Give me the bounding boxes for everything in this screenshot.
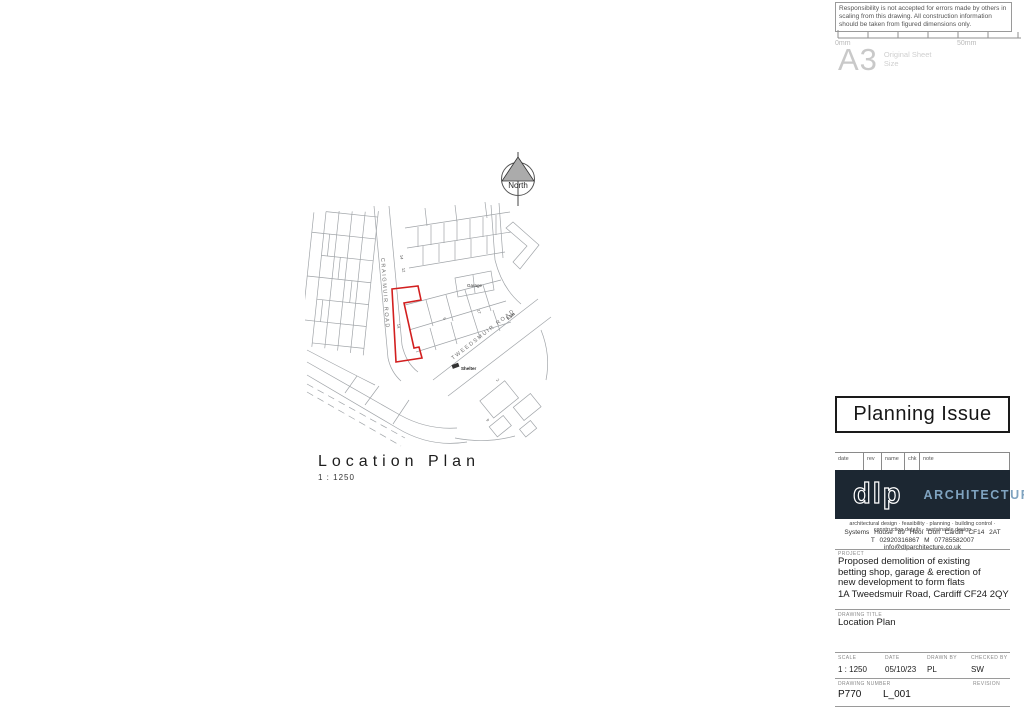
plot-number: 2 [495, 377, 501, 383]
date-value: 05/10/23 [885, 665, 927, 674]
plan-title: Location Plan [318, 453, 480, 471]
plot-number: 14 [399, 255, 404, 261]
firm-logo-name: ARCHITECTURE [924, 488, 1024, 502]
date-label: DATE [885, 655, 927, 661]
firm-logo: dlp ARCHITECTURE [835, 470, 1010, 519]
divider-line [835, 609, 1010, 610]
divider-line [835, 706, 1010, 707]
checked-by-value: SW [971, 665, 1010, 674]
revision-col-date: date [835, 453, 864, 470]
site-plot-label: 1a [396, 323, 402, 329]
drawing-number: P770 [838, 689, 861, 700]
divider-line [835, 549, 1010, 550]
revision-col-note: note [920, 453, 1010, 470]
drawing-number-label: DRAWING NUMBER [838, 681, 891, 687]
plot-number: 9 [485, 417, 491, 423]
plot-number: 17 [476, 309, 482, 316]
site-address: 1A Tweedsmuir Road, Cardiff CF24 2QY [838, 590, 1010, 601]
title-block-column: Planning Issue date rev name chk note dl… [835, 0, 1012, 718]
north-label: North [508, 181, 528, 190]
checked-by-label: CHECKED BY [971, 655, 1010, 661]
plot-number: 6 [442, 317, 448, 322]
road-label-craigmuir: CRAIGMUIR ROAD [379, 258, 390, 330]
revision-table: date rev name chk note [835, 452, 1010, 470]
revision-col-rev: rev [864, 453, 882, 470]
drawing-sheet-code: L_001 [883, 689, 911, 700]
drawn-by-label: DRAWN BY [927, 655, 971, 661]
plan-caption: Location Plan 1 : 1250 [318, 453, 480, 482]
garage-label: Garage [467, 283, 483, 288]
meta-grid: SCALE 1 : 1250 DATE 05/10/23 DRAWN BY PL… [838, 655, 1010, 674]
meta-drawn: DRAWN BY PL [927, 655, 971, 674]
revision-col-chk: chk [905, 453, 920, 470]
meta-checked: CHECKED BY SW [971, 655, 1010, 674]
revision-label: REVISION [973, 681, 1000, 687]
location-plan-map: CRAIGMUIR ROAD TWEEDSMUIR ROAD Garage Sh… [305, 200, 553, 448]
drawing-title: Location Plan [838, 618, 896, 629]
plot-number: 12 [401, 268, 406, 274]
firm-address: Systems House 89 Heol Don Cardiff CF14 2… [835, 529, 1010, 536]
meta-date: DATE 05/10/23 [885, 655, 927, 674]
scale-value: 1 : 1250 [838, 665, 885, 674]
project-description: Proposed demolition of existing betting … [838, 557, 998, 589]
shelter-label: Shelter [461, 366, 477, 371]
divider-line [835, 678, 1010, 679]
drawing-sheet: Responsibility is not accepted for error… [0, 0, 1024, 718]
status-label: Planning Issue [853, 403, 991, 426]
scale-label: SCALE [838, 655, 885, 661]
shelter-mark [451, 363, 459, 369]
plan-scale: 1 : 1250 [318, 473, 480, 482]
revision-col-name: name [882, 453, 905, 470]
meta-scale: SCALE 1 : 1250 [838, 655, 885, 674]
divider-line [835, 652, 1010, 653]
firm-logo-monogram: dlp [853, 478, 903, 511]
status-box: Planning Issue [835, 396, 1010, 433]
drawn-by-value: PL [927, 665, 971, 674]
